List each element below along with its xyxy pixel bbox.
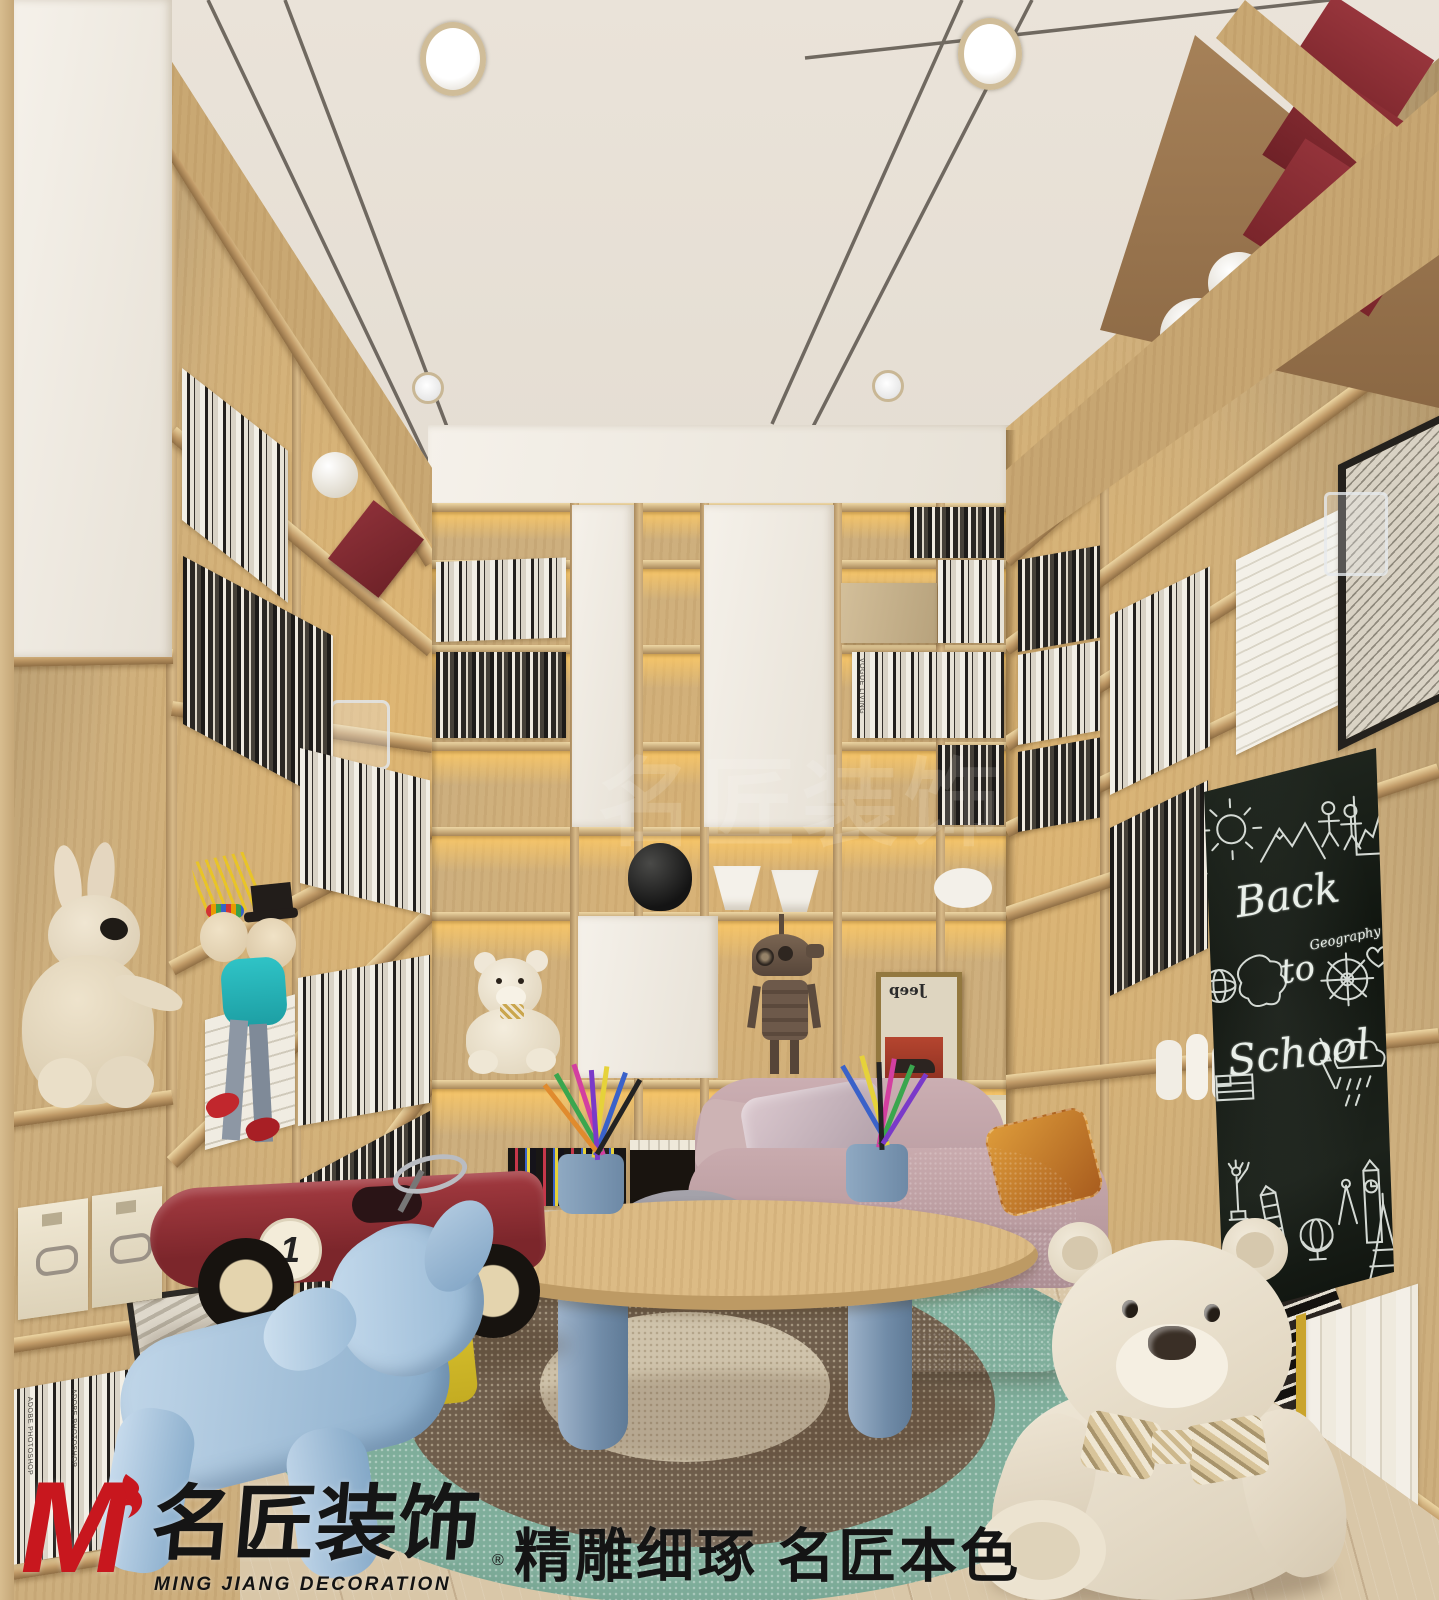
book-row bbox=[436, 557, 566, 642]
book-row bbox=[938, 560, 1004, 643]
small-teddy-bear bbox=[460, 946, 572, 1078]
plush-bunny bbox=[0, 830, 172, 1120]
left-wall-edge-strip bbox=[0, 0, 14, 1600]
pencil-cup bbox=[846, 1144, 908, 1202]
doll-torso-teal bbox=[220, 956, 289, 1028]
shelf-divider bbox=[1100, 470, 1109, 1270]
bear-eye-icon bbox=[518, 978, 524, 984]
kissing-dolls bbox=[186, 856, 316, 1146]
back-wall-white-strip bbox=[428, 425, 1012, 510]
usa-flag-icon bbox=[1216, 1074, 1253, 1100]
center-watermark: 名匠装饰 bbox=[598, 726, 1038, 865]
doll-head bbox=[200, 912, 248, 962]
bow-knot bbox=[1152, 1430, 1192, 1464]
sphere-lamp bbox=[312, 452, 358, 498]
pencil-cup bbox=[558, 1154, 624, 1214]
fabric-storage-box bbox=[18, 1198, 88, 1320]
rain-cloud-icon bbox=[1334, 1041, 1387, 1107]
bunny-foot bbox=[38, 1058, 92, 1108]
bow-tie-icon bbox=[500, 1004, 524, 1019]
box-grommet-icon bbox=[110, 1232, 152, 1266]
storage-box bbox=[841, 583, 937, 643]
doll-leg bbox=[222, 1020, 248, 1141]
box-slot bbox=[116, 1200, 136, 1215]
book-row bbox=[1018, 546, 1100, 652]
robot-leg bbox=[790, 1040, 799, 1074]
downlight-icon bbox=[412, 372, 444, 404]
jeep-poster-text: Jeep bbox=[889, 981, 926, 999]
book-row bbox=[910, 507, 1004, 558]
framed-sketch-art bbox=[1338, 408, 1439, 751]
red-shoe-icon bbox=[243, 1113, 282, 1145]
box-slot bbox=[42, 1212, 62, 1227]
white-candle bbox=[1186, 1034, 1208, 1100]
book-row bbox=[298, 955, 430, 1126]
mountains-icon bbox=[1259, 822, 1325, 861]
flame-icon bbox=[106, 1472, 146, 1520]
downlight-icon bbox=[958, 18, 1022, 90]
robot-arm bbox=[807, 984, 821, 1029]
kids-library-room-render: VOGUE LIVING Jeep bbox=[0, 0, 1439, 1600]
colored-pencils bbox=[834, 1054, 926, 1152]
logo-name-en: MING JIANG DECORATION bbox=[154, 1574, 451, 1596]
bunny-foot bbox=[96, 1056, 154, 1108]
robot-body bbox=[762, 980, 808, 1040]
white-ornament bbox=[934, 868, 992, 908]
downlight-icon bbox=[420, 22, 486, 96]
toy-robot bbox=[748, 914, 820, 1078]
brand-slogan: 精雕细琢 名匠本色 bbox=[514, 1528, 1021, 1586]
sun-icon bbox=[1200, 798, 1263, 861]
colored-pencils bbox=[546, 1062, 642, 1162]
robot-eye-icon bbox=[778, 946, 793, 961]
bear-eye-icon bbox=[1204, 1304, 1220, 1322]
registered-mark: ® bbox=[492, 1552, 504, 1570]
bear-foot bbox=[468, 1050, 498, 1074]
ship-wheel-icon bbox=[1320, 952, 1375, 1007]
robot-arm bbox=[747, 986, 761, 1029]
book-spine-label: VOGUE LIVING bbox=[858, 658, 865, 714]
bear-nose-icon bbox=[1148, 1326, 1196, 1360]
robot-antenna bbox=[779, 914, 784, 936]
robot-side-scope bbox=[806, 944, 824, 958]
bear-eye-icon bbox=[496, 978, 502, 984]
lightning-icon bbox=[1320, 1038, 1335, 1089]
downlight-icon bbox=[872, 370, 904, 402]
robot-eye-icon bbox=[756, 948, 774, 966]
cabinet-panel bbox=[578, 916, 718, 1078]
book-row bbox=[436, 652, 566, 738]
white-candle bbox=[1156, 1040, 1182, 1100]
robot-leg bbox=[770, 1040, 779, 1074]
left-tall-cabinet-panel bbox=[14, 0, 172, 657]
map-icon bbox=[1237, 954, 1287, 1007]
bear-eye-icon bbox=[1122, 1300, 1138, 1318]
brand-logo: M 名匠装饰 ® MING JIANG DECORATION 精雕细琢 名匠本色 bbox=[14, 1466, 1074, 1600]
box-grommet-icon bbox=[36, 1244, 78, 1278]
logo-name-cn: 名匠装饰 bbox=[148, 1484, 483, 1566]
shelf-board bbox=[428, 912, 1012, 921]
glass-cup bbox=[1324, 492, 1388, 576]
